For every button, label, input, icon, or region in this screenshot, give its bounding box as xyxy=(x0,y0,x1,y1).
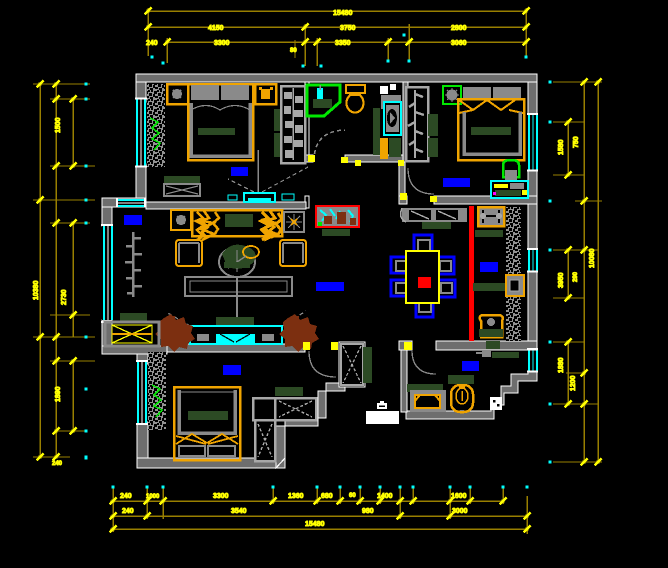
svg-text:3540: 3540 xyxy=(231,508,247,515)
svg-text:3750: 3750 xyxy=(340,25,356,32)
svg-text:240: 240 xyxy=(52,461,63,467)
svg-text:1600: 1600 xyxy=(451,493,467,500)
svg-text:60: 60 xyxy=(349,493,356,499)
svg-text:3000: 3000 xyxy=(452,508,468,515)
svg-text:1400: 1400 xyxy=(377,493,393,500)
svg-text:1000: 1000 xyxy=(146,494,160,500)
svg-text:240: 240 xyxy=(120,493,132,500)
svg-text:15480: 15480 xyxy=(305,521,325,528)
svg-text:3300: 3300 xyxy=(213,493,229,500)
svg-text:980: 980 xyxy=(362,508,374,515)
svg-text:3950: 3950 xyxy=(558,272,565,288)
svg-text:10080: 10080 xyxy=(589,248,596,268)
svg-text:1580: 1580 xyxy=(558,139,565,155)
svg-text:2800: 2800 xyxy=(451,25,467,32)
svg-text:1890: 1890 xyxy=(55,386,62,402)
svg-text:240: 240 xyxy=(122,508,134,515)
svg-text:3060: 3060 xyxy=(451,40,467,47)
svg-text:290: 290 xyxy=(573,271,579,282)
svg-text:750: 750 xyxy=(573,136,580,148)
svg-text:15480: 15480 xyxy=(333,10,353,17)
svg-text:240: 240 xyxy=(146,40,158,47)
svg-text:3350: 3350 xyxy=(335,40,351,47)
svg-text:4150: 4150 xyxy=(208,25,224,32)
svg-text:10380: 10380 xyxy=(33,280,40,300)
svg-text:3300: 3300 xyxy=(214,40,230,47)
svg-text:680: 680 xyxy=(321,493,333,500)
svg-text:1500: 1500 xyxy=(55,117,62,133)
svg-text:1880: 1880 xyxy=(558,357,565,373)
svg-text:2730: 2730 xyxy=(61,289,68,305)
svg-text:1200: 1200 xyxy=(570,375,577,391)
svg-text:80: 80 xyxy=(290,48,297,54)
svg-text:1360: 1360 xyxy=(288,493,304,500)
